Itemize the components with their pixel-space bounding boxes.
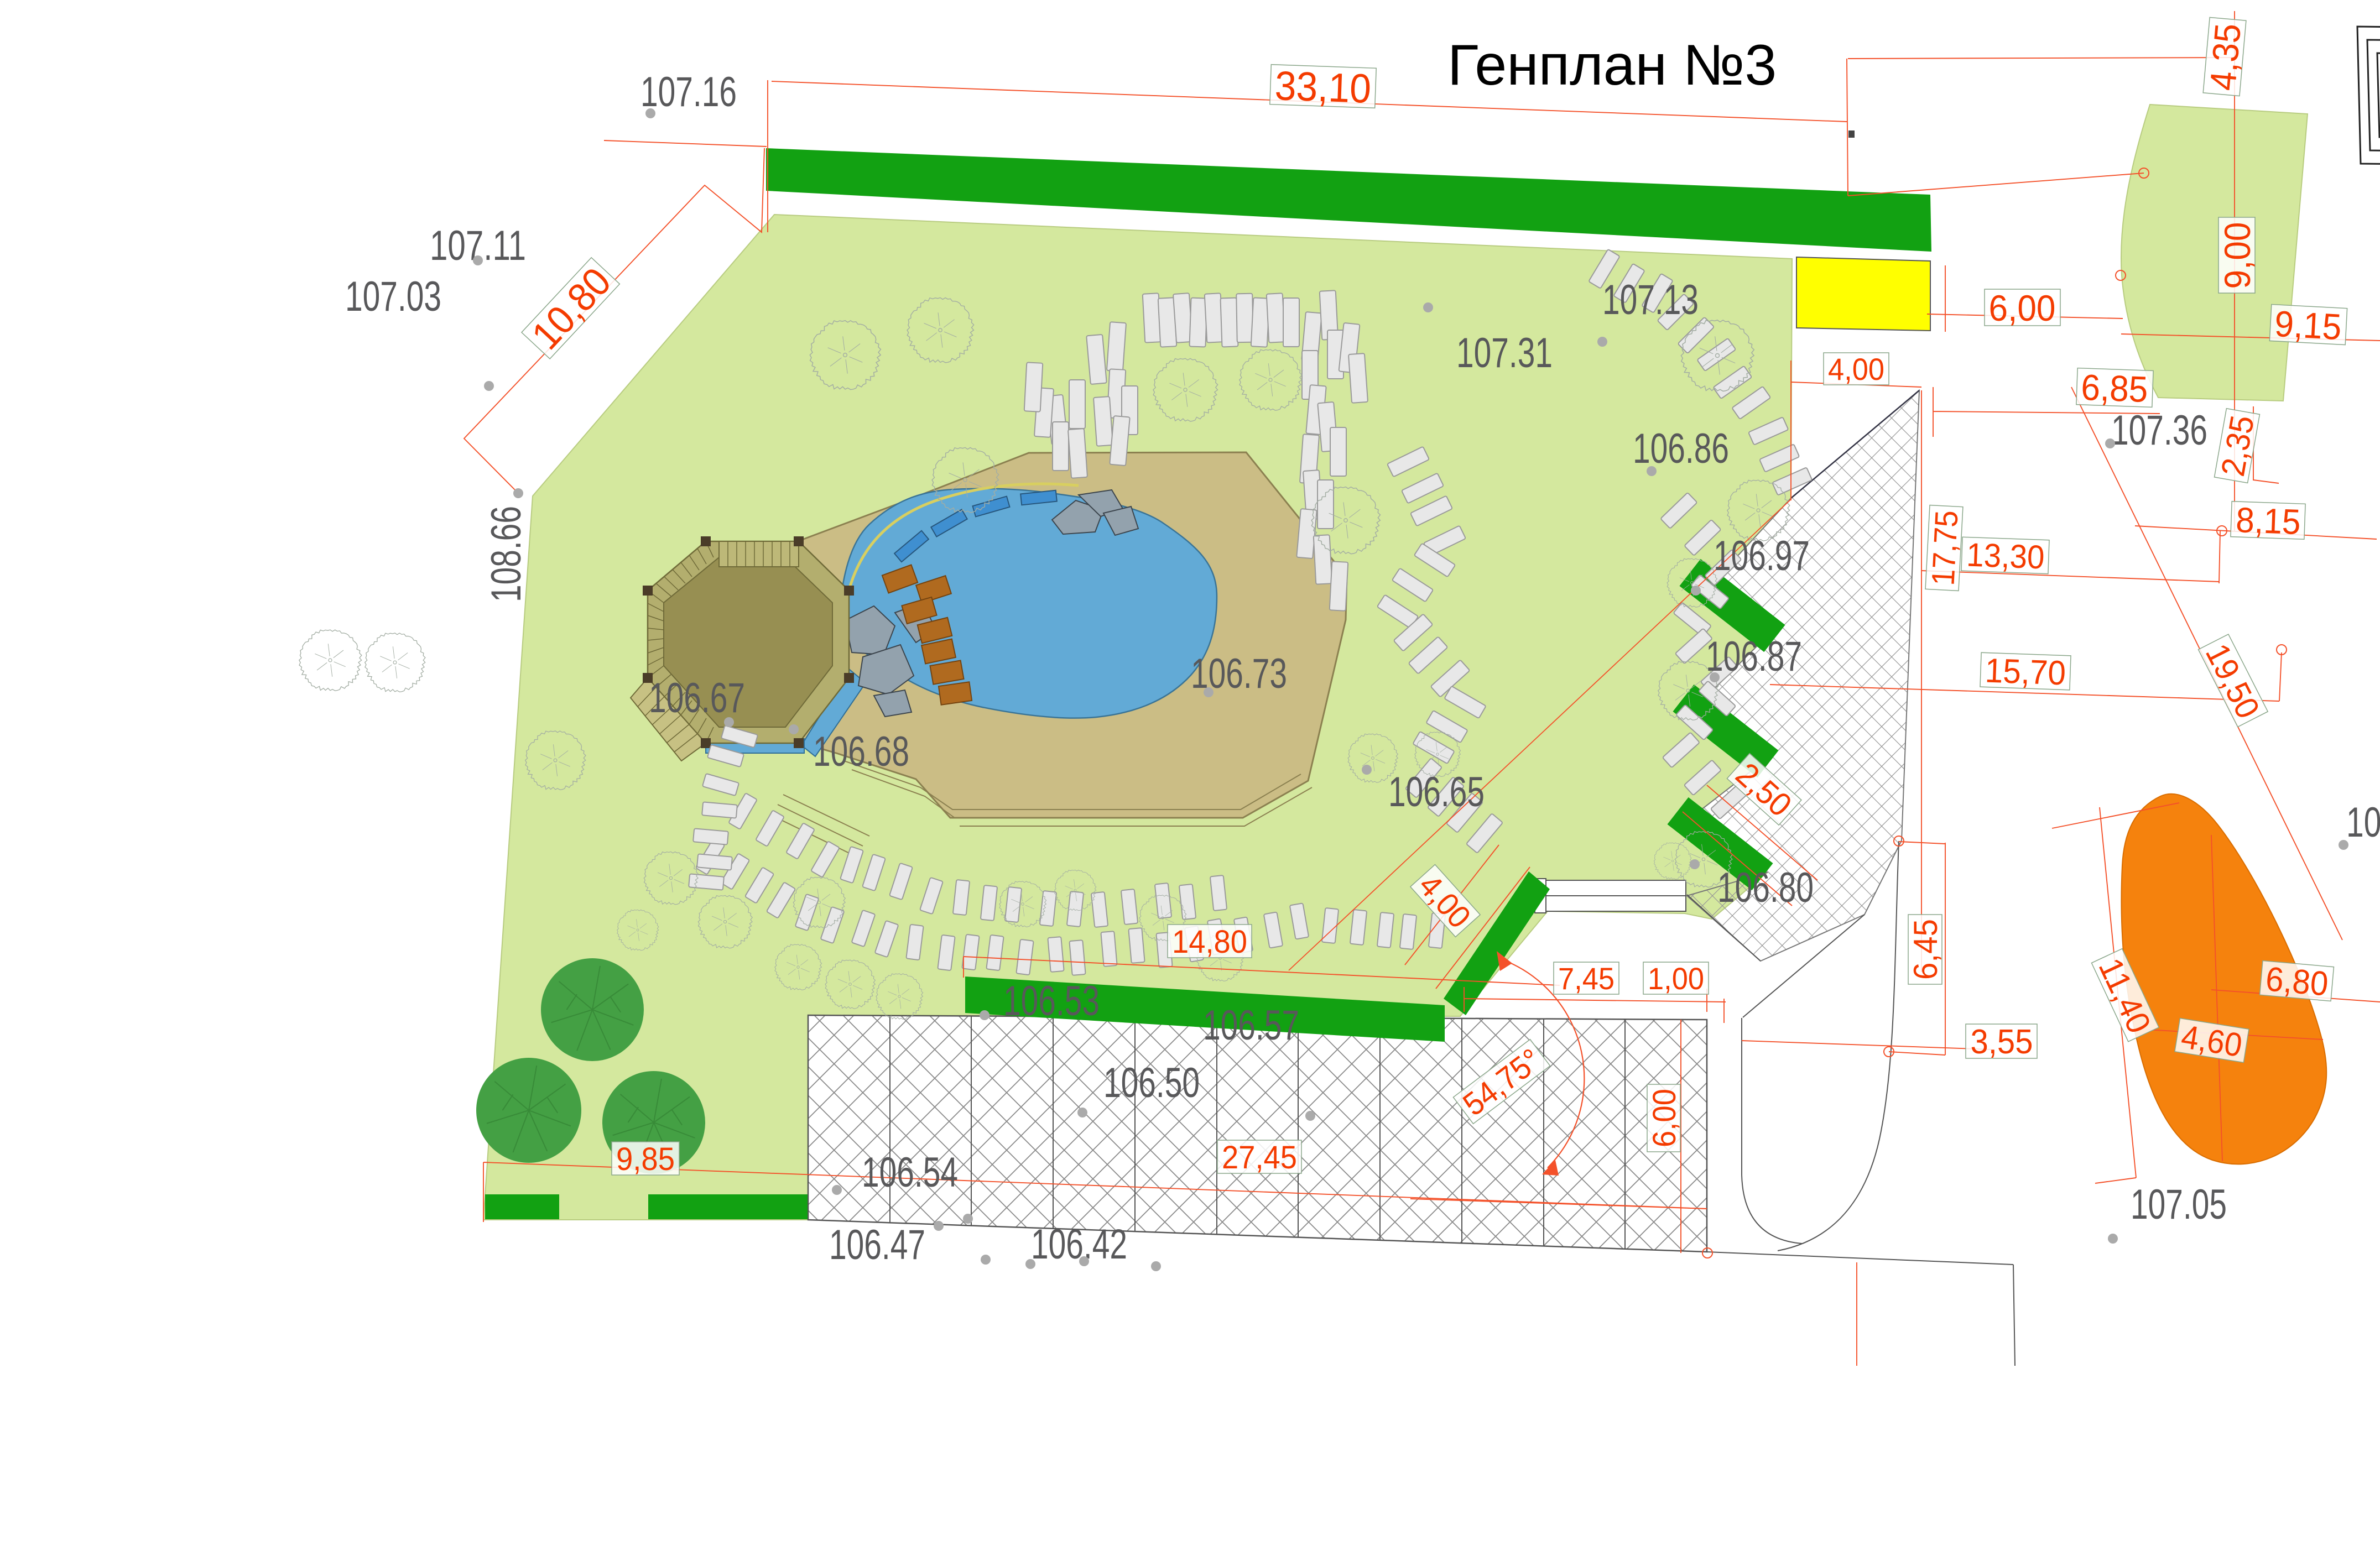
svg-text:106.97: 106.97 <box>1714 532 1810 579</box>
svg-text:6,80: 6,80 <box>2264 960 2330 1004</box>
svg-text:17,75: 17,75 <box>1925 509 1965 586</box>
svg-text:6,85: 6,85 <box>2080 367 2149 410</box>
svg-text:107.03: 107.03 <box>345 273 441 320</box>
svg-text:106.87: 106.87 <box>1706 633 1802 680</box>
svg-text:4,00: 4,00 <box>1828 352 1884 387</box>
svg-text:8,15: 8,15 <box>2235 500 2301 542</box>
svg-text:9,00: 9,00 <box>2217 222 2258 289</box>
svg-text:106.57: 106.57 <box>1203 1002 1299 1049</box>
svg-text:13,30: 13,30 <box>1966 536 2045 576</box>
svg-text:27,45: 27,45 <box>1222 1140 1297 1176</box>
svg-text:107.13: 107.13 <box>1602 276 1699 323</box>
svg-text:6,00: 6,00 <box>1647 1089 1683 1147</box>
svg-text:106.65: 106.65 <box>1388 769 1485 816</box>
svg-text:3,55: 3,55 <box>1971 1023 2033 1061</box>
svg-text:9,15: 9,15 <box>2274 303 2343 347</box>
svg-text:106.67: 106.67 <box>649 675 745 722</box>
svg-text:1,00: 1,00 <box>1648 961 1704 996</box>
svg-text:106.53: 106.53 <box>1003 978 1100 1025</box>
svg-text:106.54: 106.54 <box>862 1149 958 1196</box>
svg-text:33,10: 33,10 <box>1274 62 1372 112</box>
svg-text:6,45: 6,45 <box>1907 919 1944 980</box>
svg-text:107.: 107. <box>2346 799 2380 846</box>
svg-text:15,70: 15,70 <box>1985 651 2066 692</box>
svg-text:106.86: 106.86 <box>1633 425 1729 472</box>
svg-text:107.36: 107.36 <box>2111 407 2207 454</box>
svg-text:106.80: 106.80 <box>1717 864 1814 911</box>
svg-text:108.66: 108.66 <box>483 506 530 602</box>
svg-text:106.50: 106.50 <box>1103 1059 1200 1106</box>
svg-text:Генплан №3: Генплан №3 <box>1447 33 1777 97</box>
svg-text:9,85: 9,85 <box>616 1141 675 1177</box>
svg-text:7,45: 7,45 <box>1558 961 1615 996</box>
svg-text:106.47: 106.47 <box>829 1221 925 1268</box>
svg-text:107.31: 107.31 <box>1456 330 1553 377</box>
svg-text:14,80: 14,80 <box>1172 924 1247 960</box>
svg-text:106.42: 106.42 <box>1031 1221 1127 1268</box>
svg-text:106.68: 106.68 <box>813 728 909 775</box>
svg-text:4,35: 4,35 <box>2202 22 2248 92</box>
svg-text:107.05: 107.05 <box>2131 1181 2227 1228</box>
svg-text:6,00: 6,00 <box>1989 288 2056 328</box>
svg-text:107.16: 107.16 <box>640 69 737 116</box>
